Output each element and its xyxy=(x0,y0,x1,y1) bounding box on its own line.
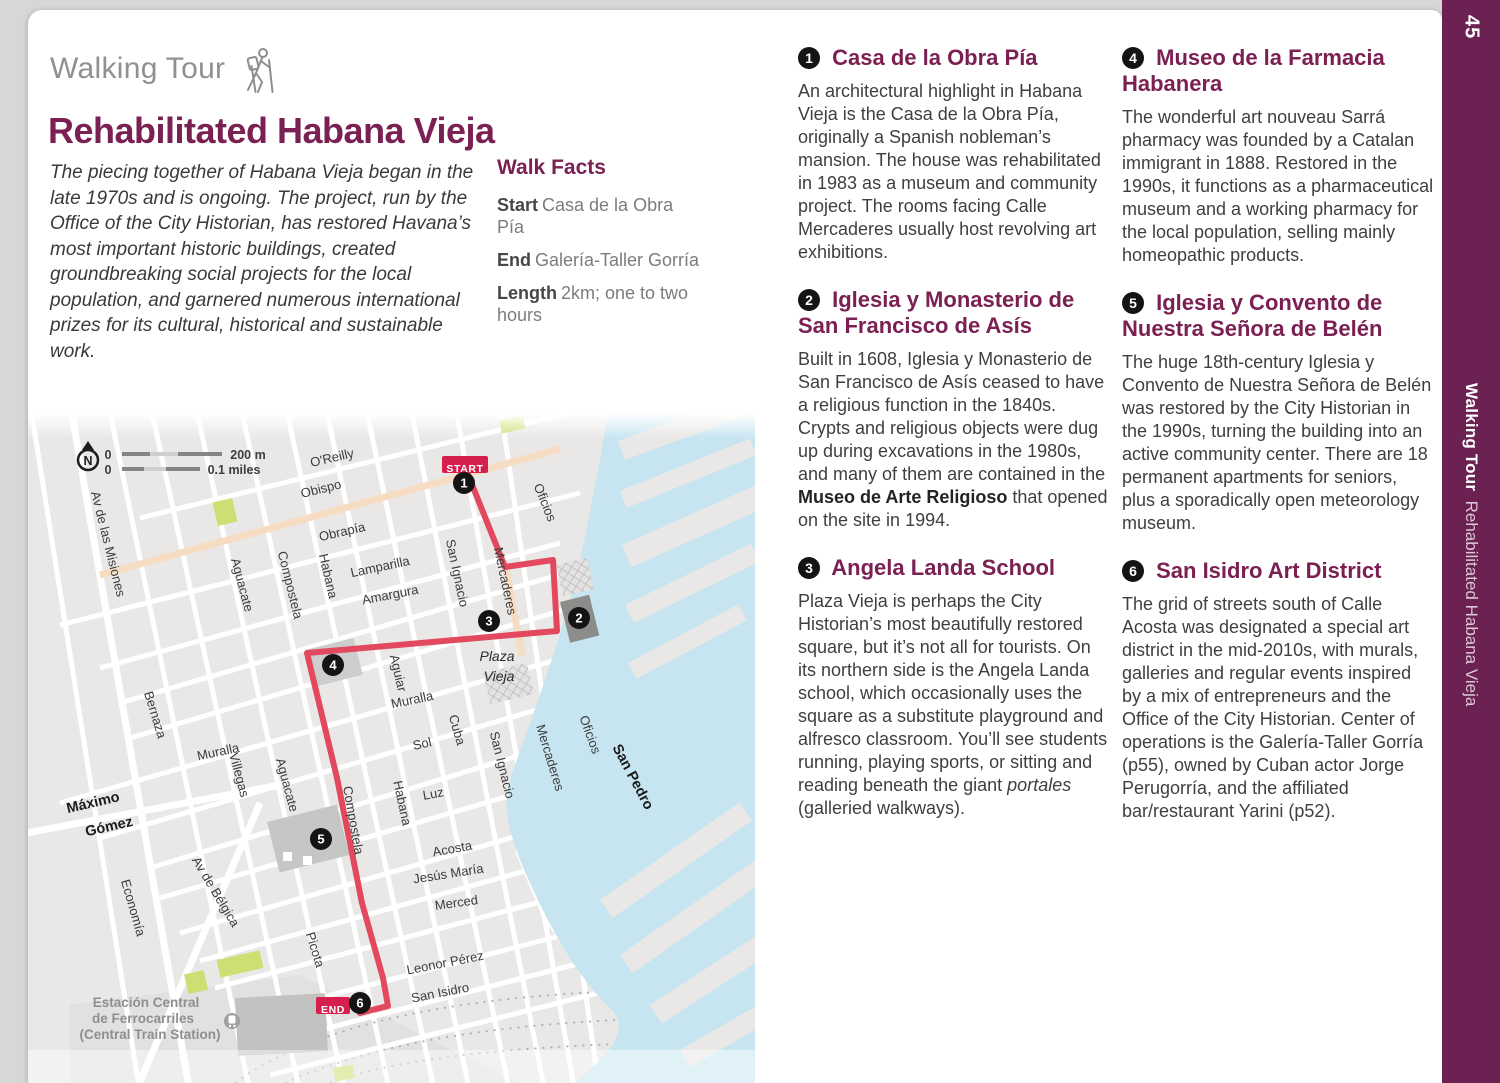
tour-stop-section: 6 San Isidro Art DistrictThe grid of str… xyxy=(1122,558,1434,823)
stop-number-badge: 3 xyxy=(798,557,820,579)
column-stops-4-6: 4 Museo de la Farmacia HabaneraThe wonde… xyxy=(1122,45,1434,846)
map-label: (Central Train Station) xyxy=(79,1027,220,1042)
stop-number-badge: 6 xyxy=(1122,560,1144,582)
map-label: Vieja xyxy=(484,668,515,684)
tour-stop-body: An architectural highlight in Habana Vie… xyxy=(798,80,1110,264)
map-label: Estación Central xyxy=(93,995,200,1010)
tour-stop-section: 1 Casa de la Obra PíaAn architectural hi… xyxy=(798,45,1110,264)
end-badge-label: END xyxy=(321,1004,345,1016)
page-title: Rehabilitated Habana Vieja xyxy=(48,110,495,152)
tour-stop-body: Plaza Vieja is perhaps the City Historia… xyxy=(798,590,1110,820)
tour-stop-section: 4 Museo de la Farmacia HabaneraThe wonde… xyxy=(1122,45,1434,267)
map-top-fade xyxy=(28,413,755,439)
walk-facts-list: StartCasa de la Obra PíaEndGalería-Talle… xyxy=(497,194,703,326)
map-label: Plaza xyxy=(479,648,514,664)
walking-tour-eyebrow: Walking Tour xyxy=(50,52,225,86)
hiker-icon xyxy=(236,46,282,94)
tour-stop-heading: 5 Iglesia y Convento de Nuestra Señora d… xyxy=(1122,290,1434,342)
tour-stop-heading: 1 Casa de la Obra Pía xyxy=(798,45,1110,71)
walk-fact: EndGalería-Taller Gorría xyxy=(497,249,703,271)
walk-fact-label: End xyxy=(497,250,531,270)
stop-marker-number: 3 xyxy=(485,614,492,629)
tour-stop-section: 5 Iglesia y Convento de Nuestra Señora d… xyxy=(1122,290,1434,535)
stop-marker-number: 4 xyxy=(329,658,337,673)
edge-tab-title-sub: Rehabilitated Habana Vieja xyxy=(1462,491,1481,706)
map-label: 0 xyxy=(105,463,112,477)
train-station-icon xyxy=(224,1013,240,1029)
walk-facts-title: Walk Facts xyxy=(497,156,703,180)
tour-stop-heading: 3 Angela Landa School xyxy=(798,555,1110,581)
map-label: 0.1 miles xyxy=(208,463,261,477)
tour-stop-section: 2 Iglesia y Monasterio de San Francisco … xyxy=(798,287,1110,532)
stop-marker-number: 6 xyxy=(356,996,363,1011)
walk-fact-label: Start xyxy=(497,195,538,215)
stop-number-badge: 5 xyxy=(1122,292,1144,314)
page-number: 45 xyxy=(1460,15,1483,39)
tour-stop-body: The huge 18th-century Iglesia y Convento… xyxy=(1122,351,1434,535)
walk-facts-panel: Walk Facts StartCasa de la Obra PíaEndGa… xyxy=(497,156,703,337)
column-stops-1-3: 1 Casa de la Obra PíaAn architectural hi… xyxy=(798,45,1110,843)
tour-stop-heading: 2 Iglesia y Monasterio de San Francisco … xyxy=(798,287,1110,339)
walk-fact: StartCasa de la Obra Pía xyxy=(497,194,703,238)
stop-number-badge: 4 xyxy=(1122,47,1144,69)
tour-stop-heading: 6 San Isidro Art District xyxy=(1122,558,1434,584)
tour-stop-section: 3 Angela Landa SchoolPlaza Vieja is perh… xyxy=(798,555,1110,820)
map-label: 0 xyxy=(105,448,112,462)
stop-number-badge: 2 xyxy=(798,289,820,311)
intro-paragraph: The piecing together of Habana Vieja beg… xyxy=(50,160,490,364)
map-label: 200 m xyxy=(230,448,265,462)
walking-tour-map: N0200 m00.1 milesO'ReillyObispoObrapíaLa… xyxy=(28,413,755,1083)
map-label: N xyxy=(83,454,92,468)
stop-marker-number: 2 xyxy=(575,611,582,626)
tour-stop-body: The grid of streets south of Calle Acost… xyxy=(1122,593,1434,823)
edge-tab: 45 Walking TourRehabilitated Habana Viej… xyxy=(1442,0,1500,1083)
tour-stop-body: Built in 1608, Iglesia y Monasterio de S… xyxy=(798,348,1110,532)
stop-marker-number: 5 xyxy=(317,832,324,847)
walk-fact: Length2km; one to two hours xyxy=(497,282,703,326)
map-bottom-fade xyxy=(28,1050,755,1083)
tour-stop-heading: 4 Museo de la Farmacia Habanera xyxy=(1122,45,1434,97)
walk-fact-label: Length xyxy=(497,283,557,303)
tour-stop-body: The wonderful art nouveau Sarrá pharmacy… xyxy=(1122,106,1434,267)
edge-tab-title-bold: Walking Tour xyxy=(1462,383,1481,491)
stop-number-badge: 1 xyxy=(798,47,820,69)
edge-tab-title: Walking TourRehabilitated Habana Vieja xyxy=(1461,383,1481,706)
map-label: de Ferrocarriles xyxy=(92,1011,194,1026)
stop-marker-number: 1 xyxy=(460,476,467,491)
